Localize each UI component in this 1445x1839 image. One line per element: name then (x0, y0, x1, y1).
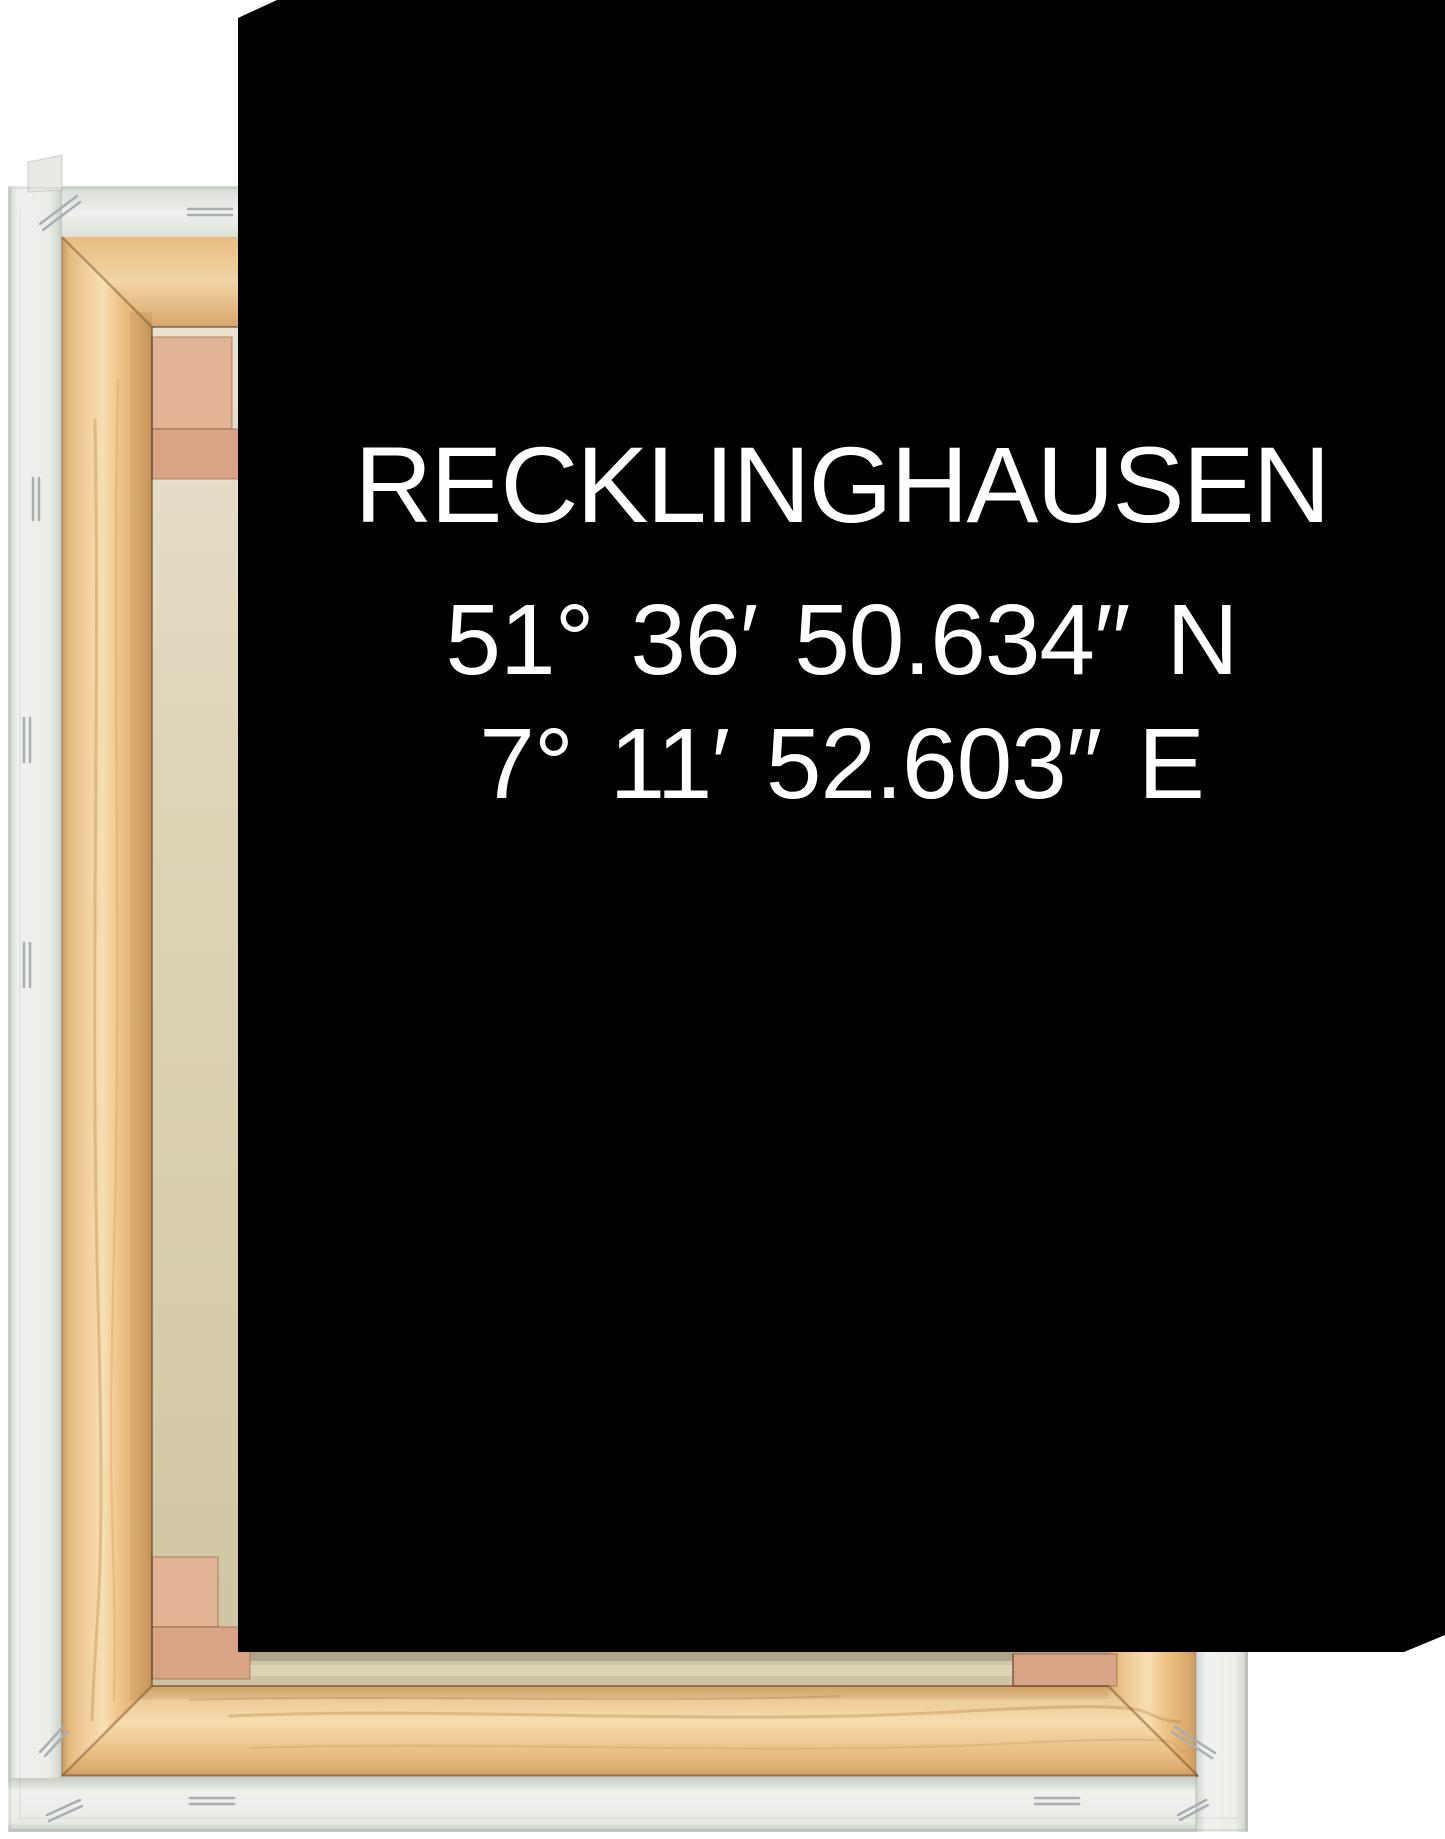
city-name: RECKLINGHAUSEN (238, 431, 1445, 539)
canvas-wrap-corner-flap (28, 155, 62, 192)
stretcher-bar-bottom-bevel (152, 1686, 1108, 1699)
canvas-wrap-right-corner (1196, 1648, 1248, 1832)
canvas-print-front: RECKLINGHAUSEN 51° 36′ 50.634′′ N 7° 11′… (238, 0, 1445, 1652)
latitude-coordinates: 51° 36′ 50.634′′ N (238, 590, 1445, 690)
canvas-print-product-mockup: RECKLINGHAUSEN 51° 36′ 50.634′′ N 7° 11′… (0, 0, 1445, 1839)
cross-brace-end (1013, 1654, 1117, 1686)
wedge-bottom-left-horizontal (152, 1627, 250, 1679)
canvas-wrap-left (8, 186, 62, 1832)
longitude-coordinates: 7° 11′ 52.603′′ E (238, 714, 1445, 814)
stretcher-bar-left-bevel (130, 312, 152, 1700)
wedge-top-left-vertical (152, 337, 232, 429)
wedge-bottom-left-vertical (152, 1557, 218, 1627)
wedge-top-left-horizontal (152, 429, 252, 479)
